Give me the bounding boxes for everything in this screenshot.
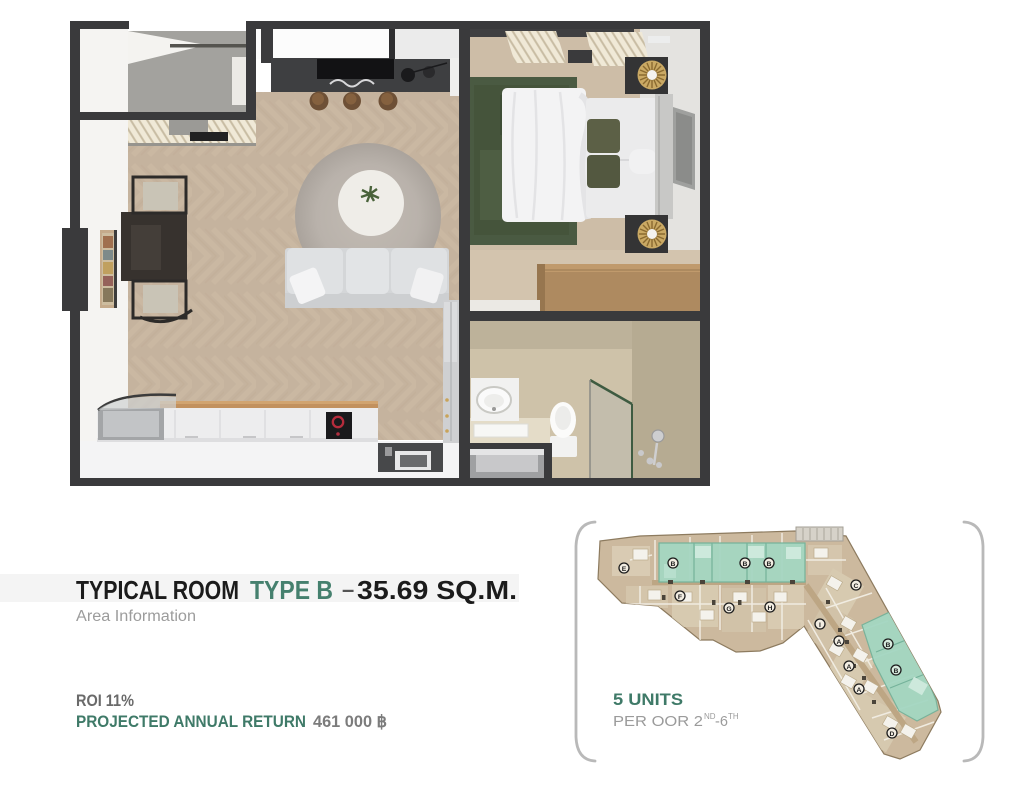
svg-text:B: B — [671, 561, 676, 568]
svg-text:-6: -6 — [715, 714, 728, 730]
svg-text:B: B — [743, 561, 748, 568]
svg-text:35.69 SQ.M.: 35.69 SQ.M. — [357, 577, 517, 605]
svg-text:F: F — [678, 594, 682, 601]
svg-text:B: B — [894, 668, 899, 675]
svg-text:A: A — [847, 664, 852, 671]
svg-text:B: B — [886, 642, 891, 649]
svg-text:PER OOR 2: PER OOR 2 — [613, 714, 703, 730]
svg-text:461 000 ฿: 461 000 ฿ — [313, 713, 387, 731]
svg-text:B: B — [767, 561, 772, 568]
svg-text:H: H — [768, 605, 773, 612]
svg-text:5 UNITS: 5 UNITS — [613, 691, 683, 709]
svg-text:TYPICAL ROOM: TYPICAL ROOM — [76, 577, 239, 605]
svg-text:I: I — [819, 622, 821, 629]
svg-text:TH: TH — [728, 712, 739, 721]
svg-text:Area Information: Area Information — [76, 608, 196, 625]
svg-text:A: A — [837, 639, 842, 646]
svg-text:ROI 11%: ROI 11% — [76, 692, 134, 710]
svg-text:TYPE B: TYPE B — [250, 577, 333, 605]
svg-text:G: G — [726, 606, 731, 613]
svg-text:ND: ND — [704, 712, 716, 721]
svg-text:E: E — [622, 566, 627, 573]
svg-text:A: A — [857, 687, 862, 694]
svg-text:D: D — [890, 731, 895, 738]
svg-text:C: C — [854, 583, 859, 590]
svg-text:PROJECTED ANNUAL RETURN: PROJECTED ANNUAL RETURN — [76, 713, 306, 731]
svg-text:–: – — [342, 577, 354, 602]
